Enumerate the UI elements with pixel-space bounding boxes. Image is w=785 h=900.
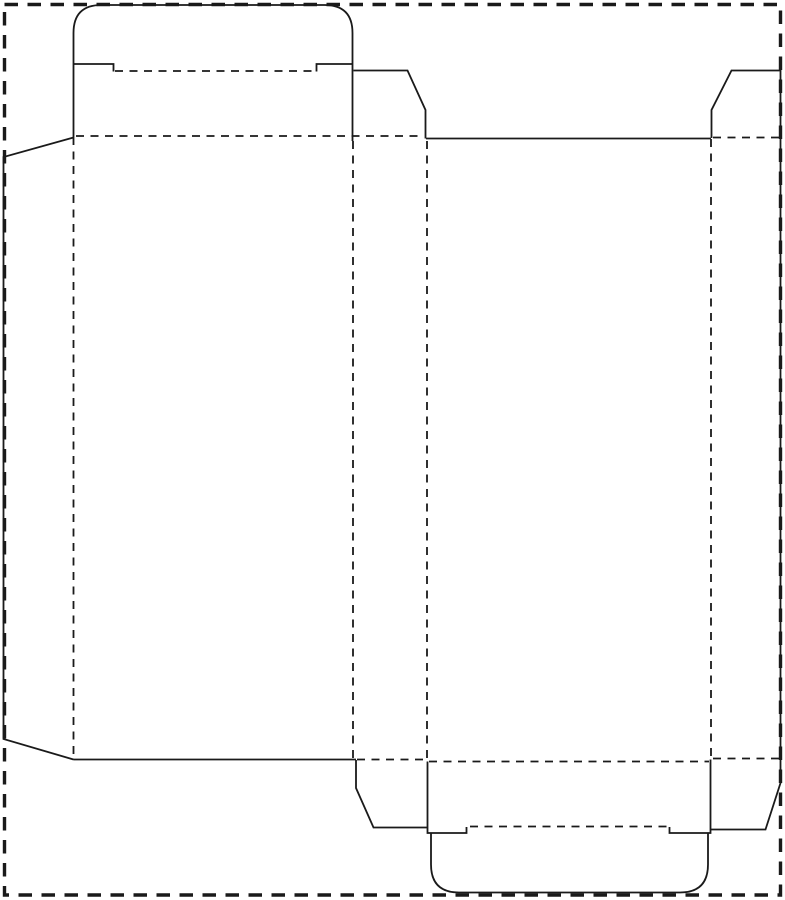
box-dieline-diagram bbox=[0, 0, 785, 900]
bottom-tuck-flap-outline bbox=[431, 833, 708, 893]
dieline-page bbox=[0, 0, 785, 900]
top-tuck-shoulder-left bbox=[74, 64, 114, 72]
top-dust-flap-left-outline bbox=[354, 71, 426, 139]
top-dust-flap-right-outline bbox=[712, 71, 781, 139]
bottom-closure-left-edge bbox=[428, 762, 467, 834]
bottom-dust-flap-right-outline bbox=[711, 759, 781, 830]
bottom-dust-flap-left-outline bbox=[356, 760, 427, 828]
bottom-closure-right-edge bbox=[670, 760, 711, 834]
fold-lines-group bbox=[74, 71, 780, 827]
top-tuck-flap-outline bbox=[74, 5, 353, 141]
top-tuck-shoulder-right bbox=[317, 64, 353, 72]
glue-flap-outline bbox=[4, 138, 74, 760]
